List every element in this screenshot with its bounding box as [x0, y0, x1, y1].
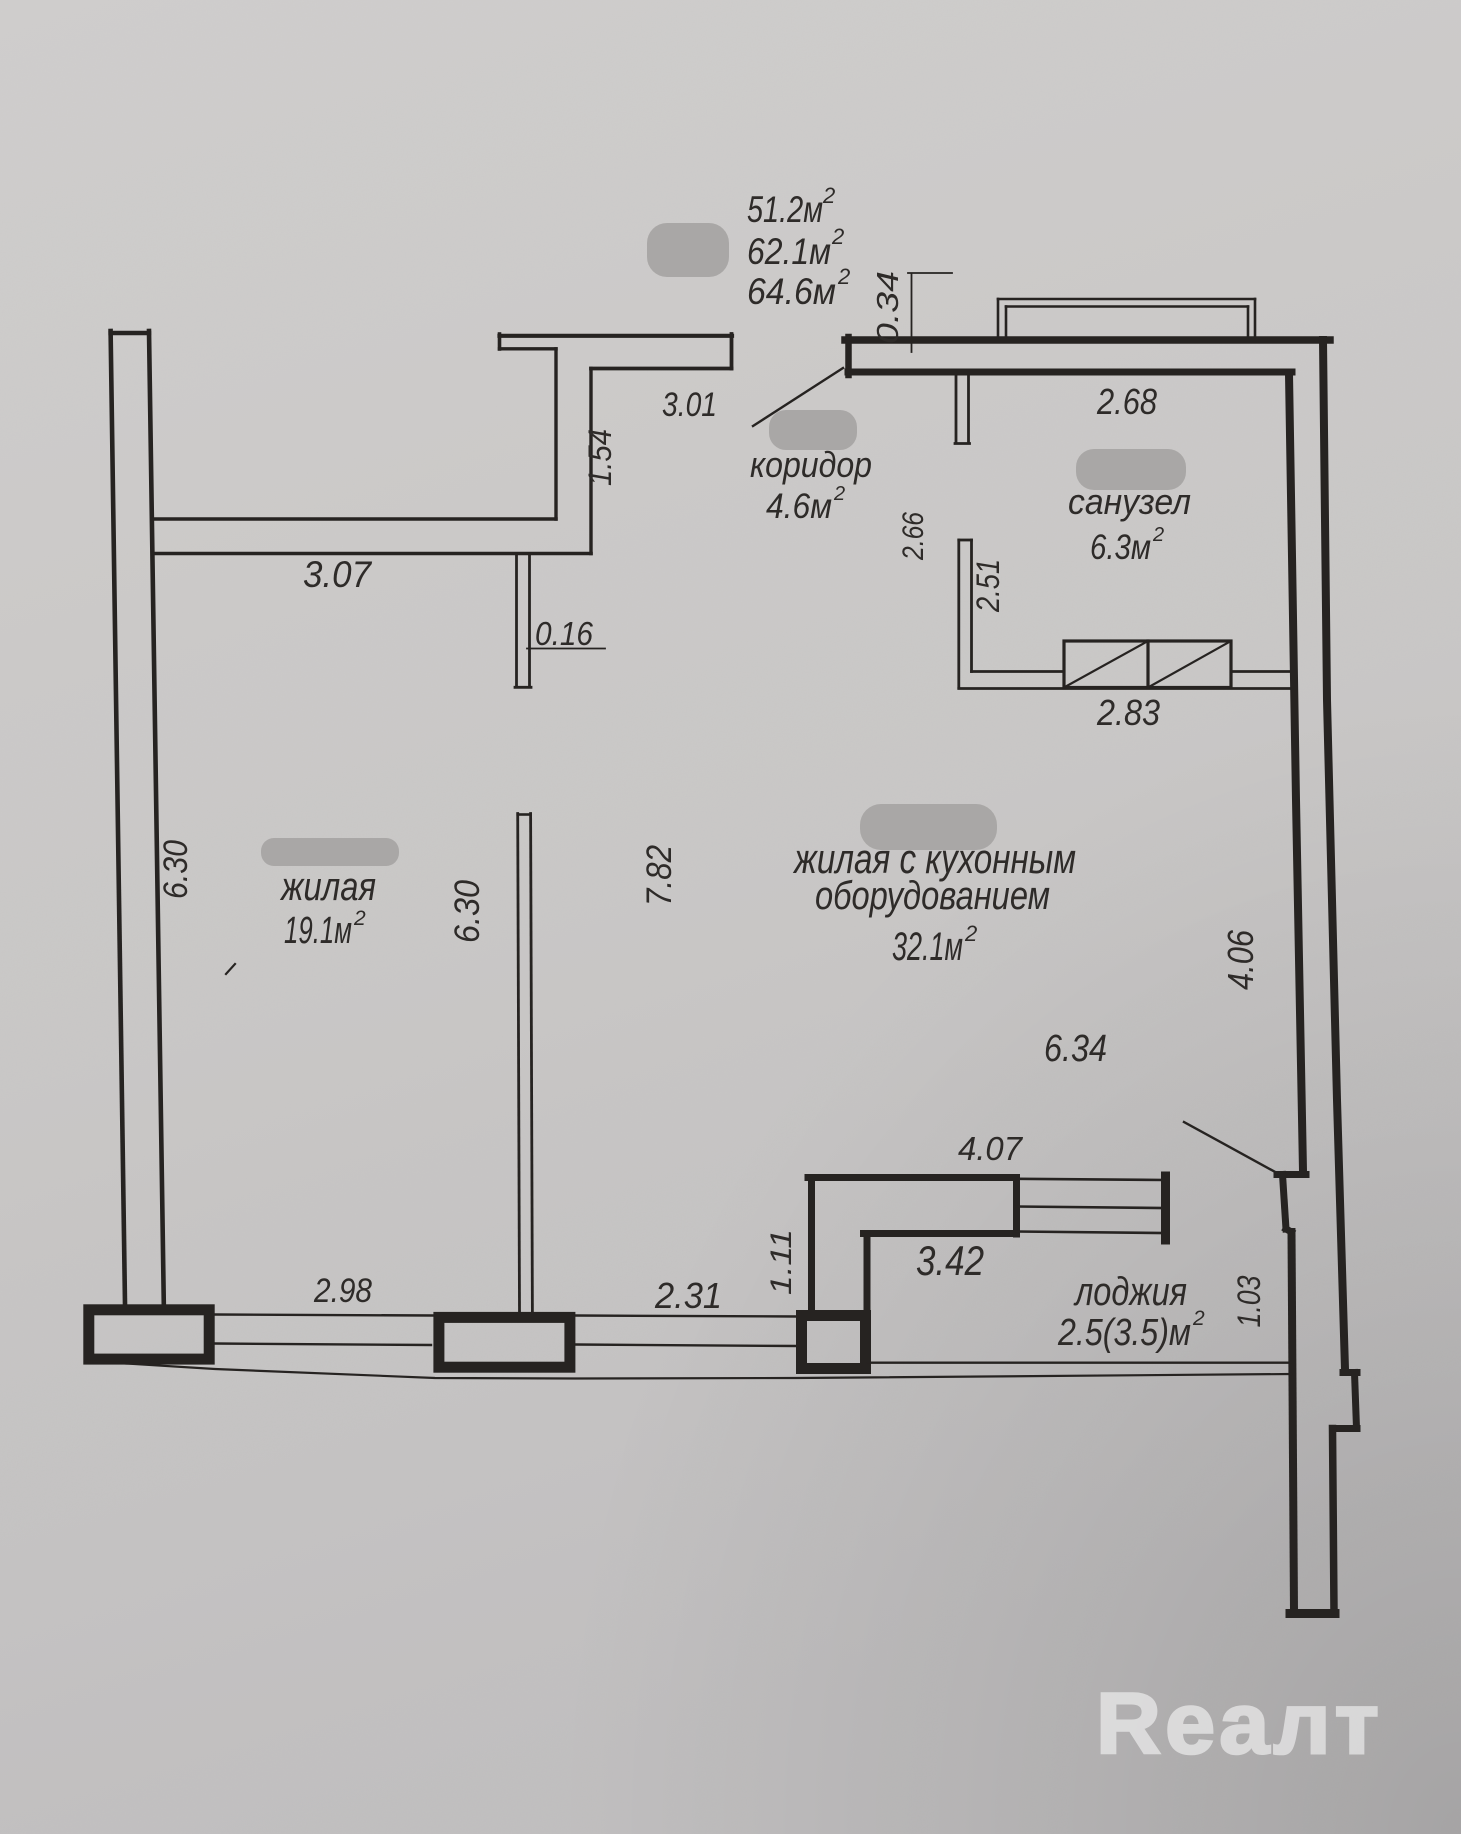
svg-text:6.30: 6.30: [448, 880, 487, 943]
svg-text:2: 2: [964, 921, 977, 946]
svg-text:6.34: 6.34: [1044, 1028, 1107, 1070]
svg-text:2.51: 2.51: [970, 559, 1006, 613]
svg-text:0.34: 0.34: [870, 271, 905, 344]
svg-text:2.68: 2.68: [1096, 381, 1157, 422]
svg-text:6.3м: 6.3м: [1090, 528, 1151, 567]
svg-text:6.30: 6.30: [157, 840, 195, 899]
svg-text:2.31: 2.31: [654, 1275, 722, 1316]
svg-text:19.1м: 19.1м: [284, 910, 352, 952]
svg-text:4.06: 4.06: [1220, 929, 1261, 990]
svg-text:4.6м: 4.6м: [766, 487, 832, 526]
svg-text:2: 2: [822, 183, 835, 208]
svg-text:2: 2: [1192, 1307, 1205, 1330]
svg-text:2: 2: [831, 224, 844, 249]
svg-text:62.1м: 62.1м: [747, 231, 831, 272]
svg-text:2.98: 2.98: [313, 1272, 372, 1310]
svg-text:жилая: жилая: [279, 865, 376, 909]
svg-text:4.07: 4.07: [958, 1130, 1024, 1167]
svg-text:7.82: 7.82: [640, 845, 679, 906]
svg-text:51.2м: 51.2м: [747, 189, 823, 230]
svg-text:оборудованием: оборудованием: [815, 874, 1050, 918]
svg-text:коридор: коридор: [750, 444, 872, 485]
svg-text:32.1м: 32.1м: [892, 925, 963, 969]
svg-text:2: 2: [1152, 524, 1164, 546]
svg-text:1.11: 1.11: [765, 1229, 798, 1295]
svg-text:1.54: 1.54: [582, 429, 618, 486]
svg-text:2.66: 2.66: [897, 512, 930, 561]
svg-text:0.16: 0.16: [535, 615, 594, 652]
svg-text:64.6м: 64.6м: [747, 271, 836, 312]
svg-text:санузел: санузел: [1068, 481, 1191, 522]
svg-text:3.07: 3.07: [303, 554, 372, 595]
svg-text:1.03: 1.03: [1231, 1275, 1267, 1327]
svg-text:2: 2: [353, 907, 366, 930]
svg-text:Rеалт: Rеалт: [1096, 1676, 1383, 1772]
svg-text:2.5(3.5)м: 2.5(3.5)м: [1057, 1312, 1191, 1354]
svg-text:2.83: 2.83: [1096, 692, 1160, 733]
svg-text:2: 2: [837, 264, 850, 289]
svg-text:3.42: 3.42: [916, 1237, 984, 1284]
svg-text:3.01: 3.01: [662, 386, 717, 424]
svg-text:лоджия: лоджия: [1073, 1270, 1187, 1314]
svg-text:2: 2: [833, 483, 845, 505]
